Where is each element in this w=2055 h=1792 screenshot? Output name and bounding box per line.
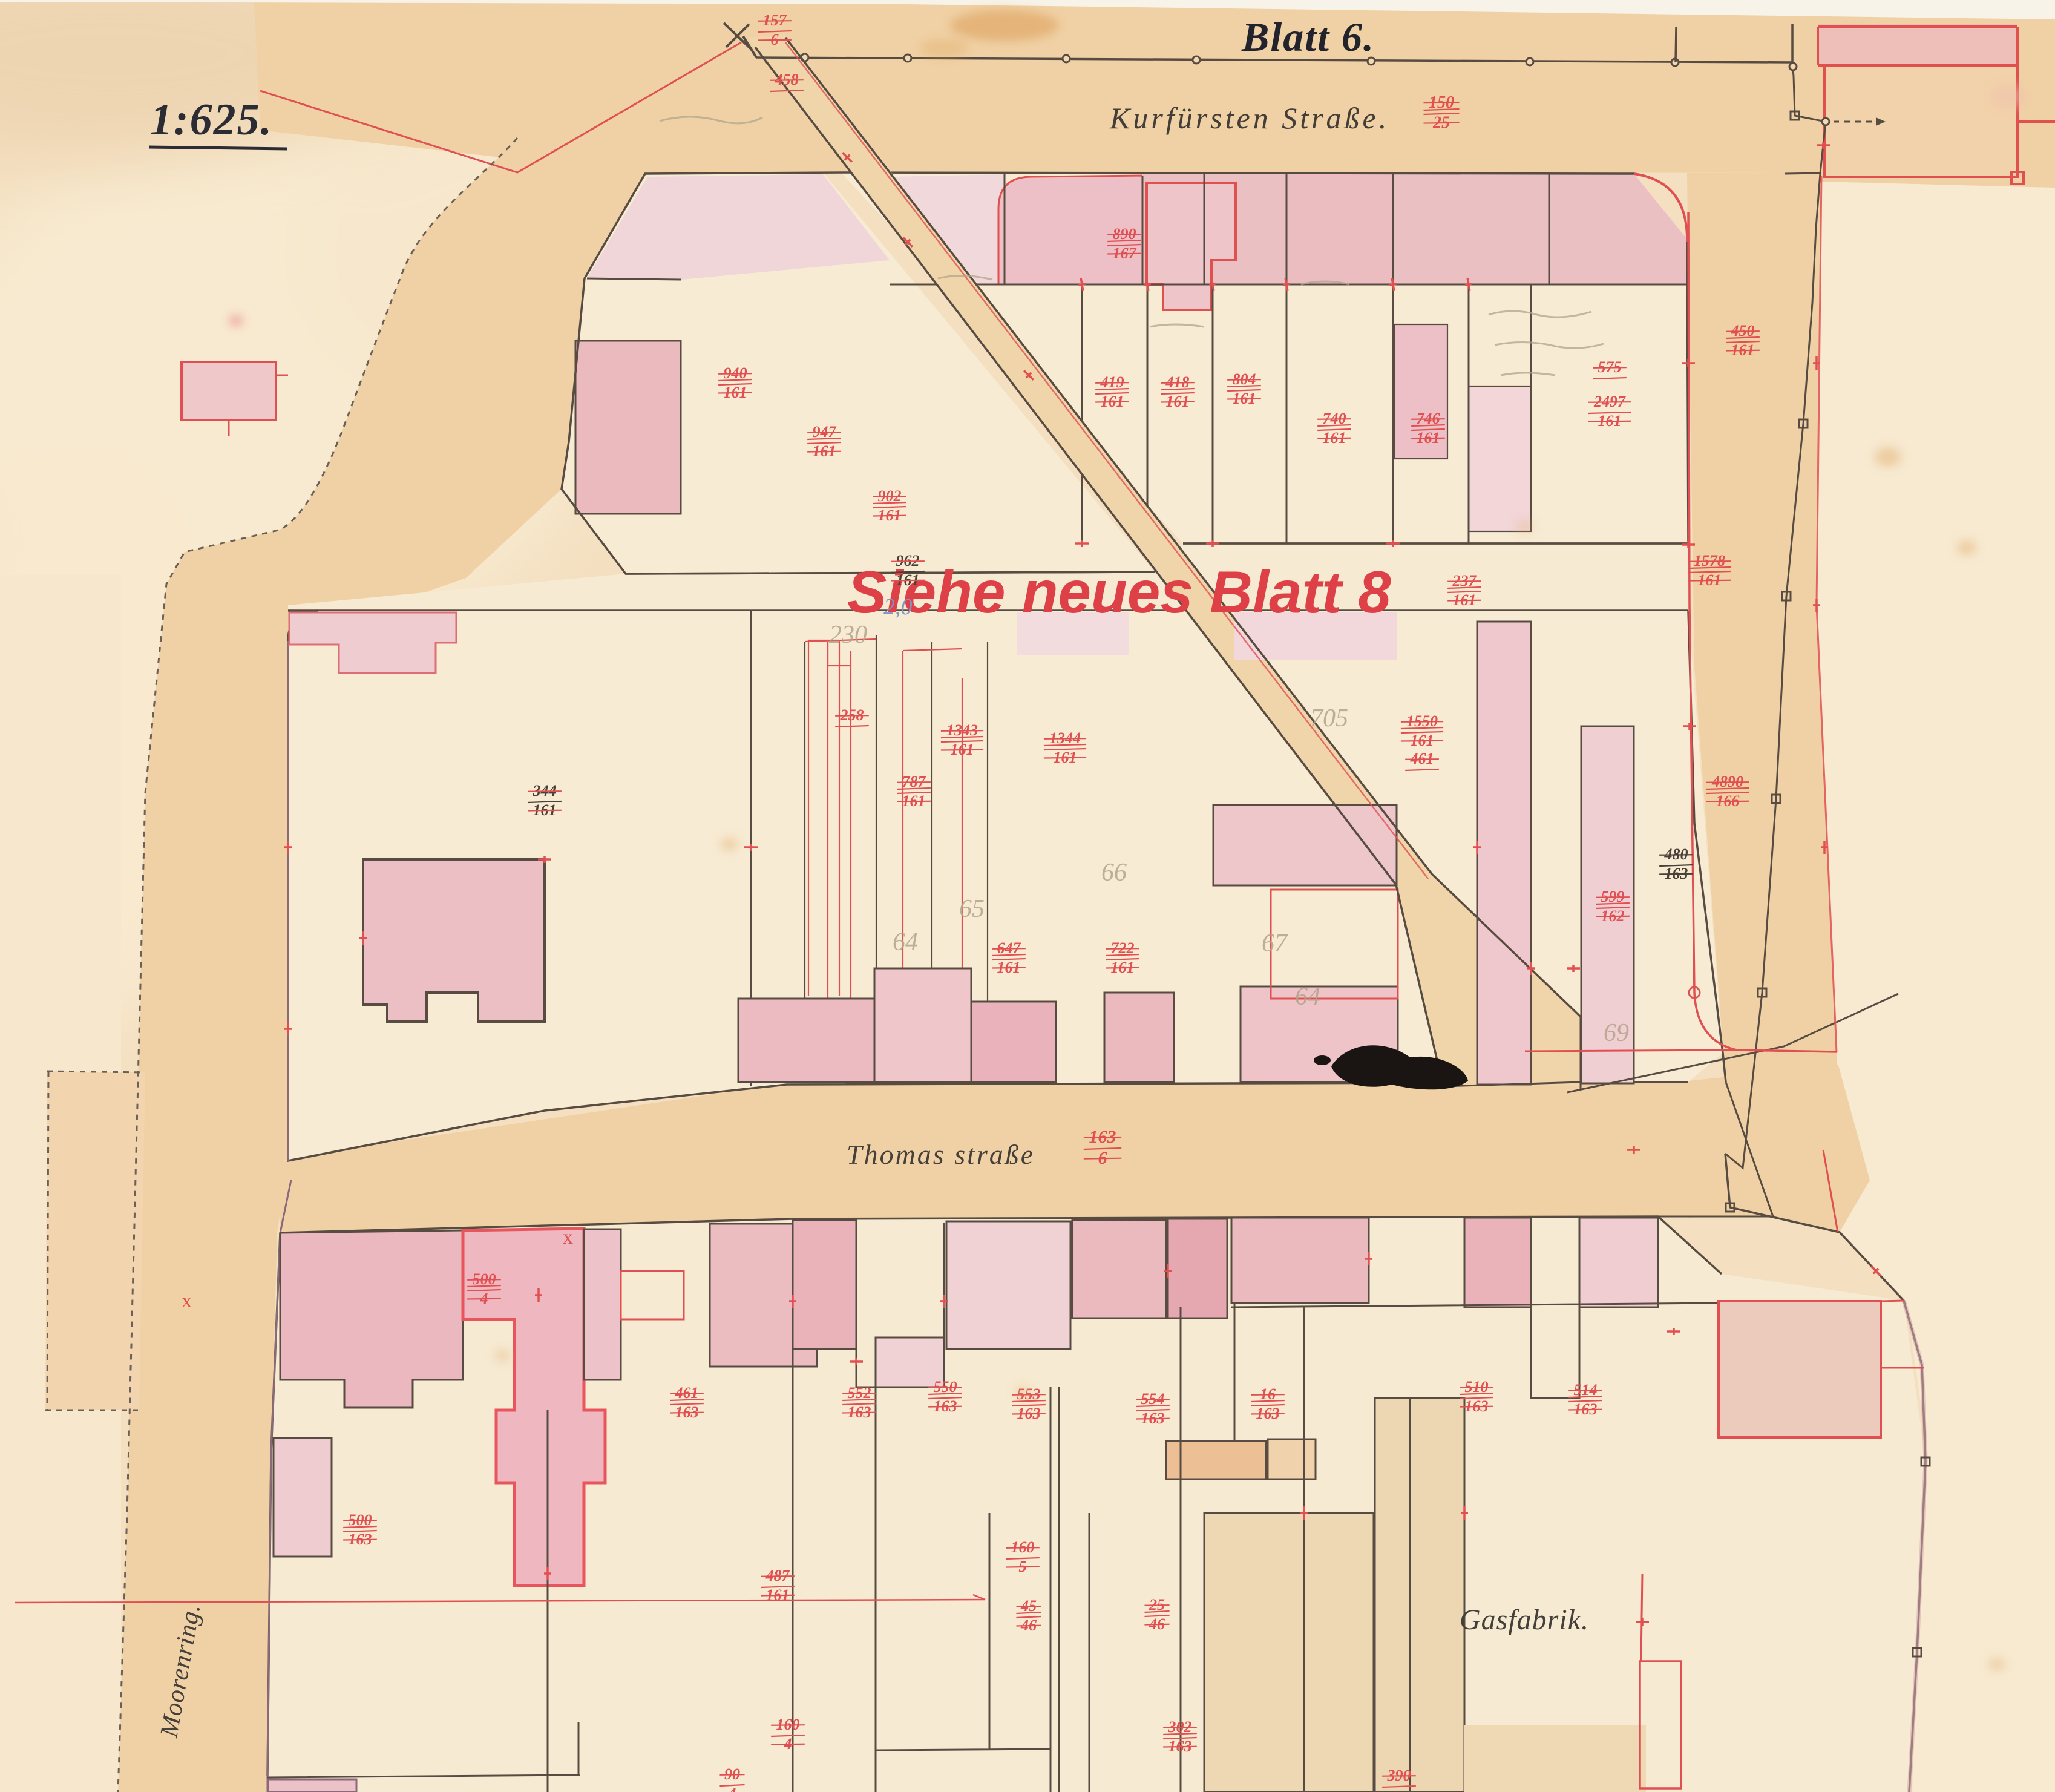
svg-text:Thomas straße: Thomas straße [847, 1139, 1035, 1170]
svg-text:2,0: 2,0 [883, 594, 913, 620]
svg-text:4: 4 [728, 1785, 736, 1792]
svg-text:64: 64 [1295, 983, 1320, 1011]
svg-text:67: 67 [1262, 930, 1288, 957]
svg-text:69: 69 [1604, 1019, 1629, 1047]
svg-text:230: 230 [829, 621, 867, 649]
svg-text:Blatt 6.: Blatt 6. [1241, 14, 1375, 60]
svg-text:x: x [563, 1226, 573, 1249]
svg-text:705: 705 [1310, 704, 1348, 732]
svg-text:64: 64 [893, 928, 918, 956]
svg-text:Kurfürsten Straße.: Kurfürsten Straße. [1109, 101, 1389, 135]
svg-text:65: 65 [959, 895, 985, 923]
svg-text:Siehe neues Blatt 8: Siehe neues Blatt 8 [847, 559, 1391, 625]
svg-text:66: 66 [1101, 859, 1127, 887]
svg-text:Gasfabrik.: Gasfabrik. [1460, 1604, 1589, 1636]
svg-text:1:625.: 1:625. [150, 95, 273, 145]
svg-text:x: x [182, 1290, 192, 1312]
